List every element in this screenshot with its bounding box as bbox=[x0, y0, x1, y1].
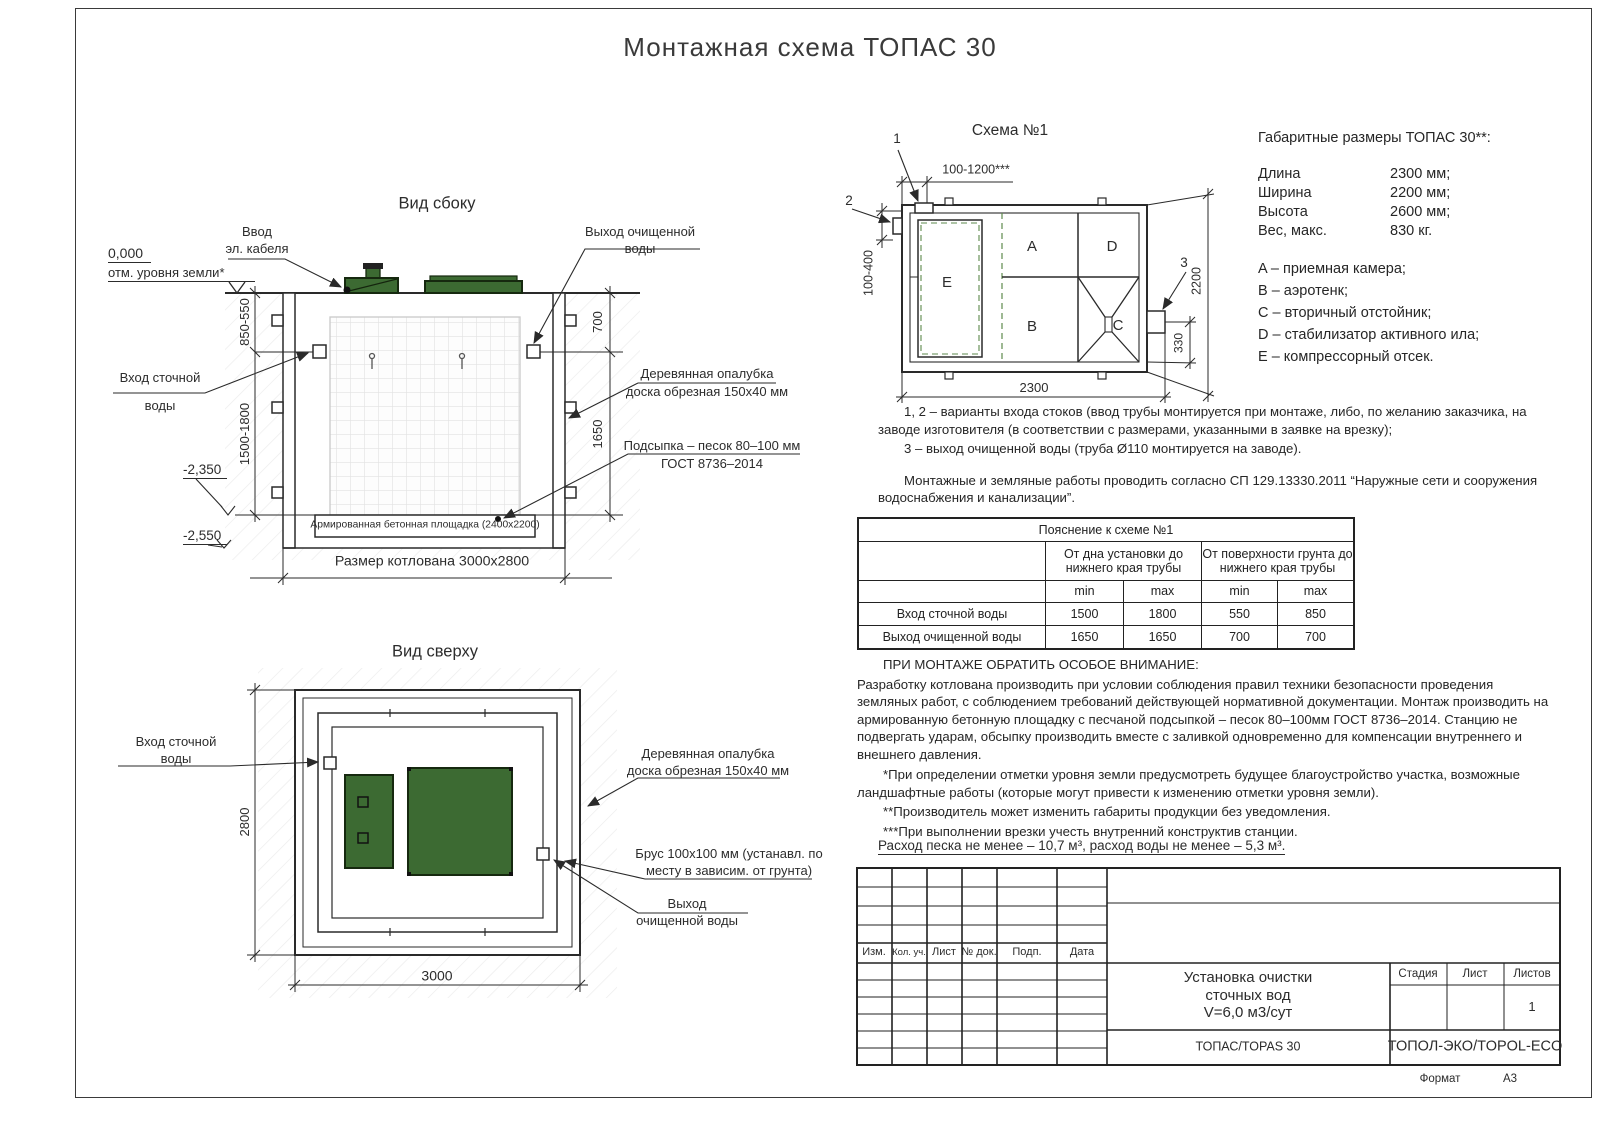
dim-2200: 2200 bbox=[1190, 267, 1203, 295]
legend-b: B – аэротенк; bbox=[1258, 283, 1348, 299]
tank-lids bbox=[345, 263, 522, 293]
callout-1: 1 bbox=[893, 132, 901, 146]
inlet-variant-1-stub bbox=[915, 203, 933, 213]
spec-height-label: Высота bbox=[1258, 204, 1308, 220]
consumption-note: Расход песка не менее – 10,7 м³, расход … bbox=[878, 839, 1285, 855]
notes-block: 1, 2 – варианты входа стоков (ввод трубы… bbox=[878, 403, 1554, 509]
stamp-product-title-2: сточных вод bbox=[1205, 988, 1290, 1004]
table-group-1: От дна установки до нижнего края трубы bbox=[1046, 542, 1202, 581]
table-cell: 1650 bbox=[1046, 626, 1124, 649]
note-variants-2: 3 – выход очищенной воды (труба Ø110 мон… bbox=[878, 440, 1554, 458]
stamp-brand: ТОПОЛ-ЭКО/TOPOL-ECO bbox=[1388, 1039, 1563, 1054]
stamp-sheets-value: 1 bbox=[1528, 1000, 1535, 1014]
stamp-col-podp: Подп. bbox=[1012, 947, 1041, 959]
sand-label-2: ГОСТ 8736–2014 bbox=[661, 457, 763, 471]
table-row: Выход очищенной воды 1650 1650 700 700 bbox=[858, 626, 1354, 649]
explanation-table: Пояснение к схеме №1 От дна установки до… bbox=[857, 517, 1355, 650]
tank-body bbox=[330, 317, 520, 515]
table-cell: 700 bbox=[1278, 626, 1355, 649]
table-cell: 1650 bbox=[1124, 626, 1202, 649]
inlet-label-1: Вход сточной bbox=[120, 371, 201, 385]
table-max-1: max bbox=[1124, 581, 1202, 603]
table-title: Пояснение к схеме №1 bbox=[858, 518, 1354, 542]
legend-e: E – компрессорный отсек. bbox=[1258, 349, 1434, 365]
table-corner-cell bbox=[858, 542, 1046, 581]
compartment-c-letter: C bbox=[1113, 318, 1124, 334]
inlet-top-label-2: воды bbox=[161, 752, 192, 766]
stamp-col-list: Лист bbox=[932, 947, 956, 959]
dim-2800: 2800 bbox=[238, 808, 252, 837]
table-cell: 700 bbox=[1202, 626, 1278, 649]
table-min-1: min bbox=[1046, 581, 1124, 603]
drawing-linework bbox=[0, 0, 1600, 1131]
callout-3: 3 bbox=[1180, 256, 1188, 270]
inlet-top-label-1: Вход сточной bbox=[136, 735, 217, 749]
cable-entry-label-1: Ввод bbox=[242, 225, 272, 239]
footnote-2: **Производитель может изменить габариты … bbox=[857, 803, 1554, 821]
inlet-variant-2-stub bbox=[893, 218, 902, 234]
dim-1650: 1650 bbox=[591, 420, 605, 449]
top-view-title: Вид сверху bbox=[392, 643, 478, 660]
pit-size-label: Размер котлована 3000x2800 bbox=[335, 555, 529, 570]
outlet-stub bbox=[1147, 311, 1165, 333]
compartment-d-letter: D bbox=[1107, 239, 1118, 255]
spec-weight-label: Вес, макс. bbox=[1258, 223, 1327, 239]
side-view-title: Вид сбоку bbox=[399, 195, 476, 212]
attention-block: ПРИ МОНТАЖЕ ОБРАТИТЬ ОСОБОЕ ВНИМАНИЕ: Ра… bbox=[857, 656, 1554, 842]
concrete-slab-label: Армированная бетонная площадка (2400x220… bbox=[310, 521, 539, 532]
stamp-sheet-header: Лист bbox=[1463, 968, 1488, 980]
clean-water-out-label-2: воды bbox=[625, 242, 656, 256]
inlet-pipe-marker-top bbox=[324, 757, 336, 769]
spec-length-value: 2300 мм; bbox=[1390, 166, 1450, 182]
footnote-1: *При определении отметки уровня земли пр… bbox=[857, 766, 1554, 801]
spec-weight-value: 830 кг. bbox=[1390, 223, 1432, 239]
timber-label-1: Брус 100x100 мм (устанавл. по bbox=[635, 847, 822, 861]
formwork-top-label-1: Деревянная опалубка bbox=[642, 747, 775, 761]
table-cell: 850 bbox=[1278, 603, 1355, 626]
dim-2300: 2300 bbox=[1020, 381, 1049, 395]
tank-lids-top bbox=[345, 768, 512, 875]
schema-title: Схема №1 bbox=[972, 123, 1048, 139]
table-cell: 1500 bbox=[1046, 603, 1124, 626]
legend-a: A – приемная камера; bbox=[1258, 261, 1406, 277]
dim-3000: 3000 bbox=[421, 969, 452, 984]
table-min-2: min bbox=[1202, 581, 1278, 603]
stamp-col-koluch: Кол. уч. bbox=[892, 948, 926, 958]
outlet-pipe-marker-top bbox=[537, 848, 549, 860]
format-label: Формат bbox=[1420, 1073, 1461, 1085]
compartment-e-letter: E bbox=[942, 275, 952, 291]
table-cell: 550 bbox=[1202, 603, 1278, 626]
specs-title: Габаритные размеры ТОПАС 30**: bbox=[1258, 130, 1491, 146]
title-block-lines bbox=[857, 868, 1560, 1065]
stamp-col-data: Дата bbox=[1070, 947, 1094, 959]
dim-330: 330 bbox=[1173, 333, 1186, 353]
format-value: А3 bbox=[1503, 1073, 1517, 1085]
inlet-pipe-marker bbox=[313, 345, 326, 358]
sand-label-1: Подсыпка – песок 80–100 мм bbox=[624, 439, 801, 453]
drawing-sheet: Монтажная схема ТОПАС 30 Вид сбоку 0,000… bbox=[0, 0, 1600, 1131]
dim-850-550: 850-550 bbox=[238, 298, 252, 346]
outlet-top-label-1: Выход bbox=[668, 897, 707, 911]
cable-entry-label-2: эл. кабеля bbox=[225, 242, 288, 256]
stamp-sheets-header: Листов bbox=[1513, 968, 1550, 980]
clean-water-out-label-1: Выход очищенной bbox=[585, 225, 695, 239]
inlet-label-2: воды bbox=[145, 399, 176, 413]
elevation-2350-label: -2,350 bbox=[183, 463, 227, 479]
dim-1500-1800: 1500-1800 bbox=[238, 403, 252, 465]
stamp-model: ТОПАС/TOPAS 30 bbox=[1196, 1040, 1301, 1053]
table-row-label: Выход очищенной воды bbox=[858, 626, 1046, 649]
cable-entry-point bbox=[344, 287, 351, 294]
elevation-2550-label: -2,550 bbox=[183, 529, 227, 545]
dim-100-400: 100-400 bbox=[862, 250, 875, 296]
compartment-b-letter: B bbox=[1027, 319, 1037, 335]
attention-heading: ПРИ МОНТАЖЕ ОБРАТИТЬ ОСОБОЕ ВНИМАНИЕ: bbox=[857, 656, 1554, 674]
callout-2: 2 bbox=[845, 194, 853, 208]
table-row: Вход сточной воды 1500 1800 550 850 bbox=[858, 603, 1354, 626]
legend-c: C – вторичный отстойник; bbox=[1258, 305, 1431, 321]
formwork-label-2: доска обрезная 150x40 мм bbox=[626, 385, 788, 399]
schema-tank bbox=[902, 205, 1147, 372]
stamp-col-ndok: № док. bbox=[961, 947, 996, 959]
timber-label-2: месту в зависим. от грунта) bbox=[646, 864, 812, 878]
table-empty-cell bbox=[858, 581, 1046, 603]
elevation-mark bbox=[229, 282, 245, 293]
ground-level-label: отм. уровня земли* bbox=[108, 266, 255, 282]
formwork-top-label-2: доска обрезная 150x40 мм bbox=[627, 764, 789, 778]
table-group-2: От поверхности грунта до нижнего края тр… bbox=[1202, 542, 1355, 581]
table-max-2: max bbox=[1278, 581, 1355, 603]
stamp-col-izm: Изм. bbox=[862, 947, 886, 959]
schema-drawing bbox=[852, 150, 1214, 403]
table-cell: 1800 bbox=[1124, 603, 1202, 626]
spec-height-value: 2600 мм; bbox=[1390, 204, 1450, 220]
zero-elevation-label: 0,000 bbox=[108, 246, 151, 263]
note-sp: Монтажные и земляные работы проводить со… bbox=[878, 472, 1554, 507]
page-title: Монтажная схема ТОПАС 30 bbox=[623, 32, 996, 63]
note-variants-1: 1, 2 – варианты входа стоков (ввод трубы… bbox=[878, 403, 1554, 438]
legend-d: D – стабилизатор активного ила; bbox=[1258, 327, 1479, 343]
outlet-top-label-2: очищенной воды bbox=[636, 914, 738, 928]
spec-width-value: 2200 мм; bbox=[1390, 185, 1450, 201]
dim-700: 700 bbox=[591, 311, 605, 333]
formwork-label-1: Деревянная опалубка bbox=[641, 367, 774, 381]
stamp-product-title-3: V=6,0 м3/сут bbox=[1204, 1005, 1292, 1021]
spec-length-label: Длина bbox=[1258, 166, 1300, 182]
stamp-stage-header: Стадия bbox=[1398, 968, 1437, 980]
top-view-drawing bbox=[118, 668, 812, 998]
attention-body: Разработку котлована производить при усл… bbox=[857, 676, 1554, 764]
spec-width-label: Ширина bbox=[1258, 185, 1312, 201]
compartment-a-letter: A bbox=[1027, 239, 1037, 255]
dim-100-1200: 100-1200*** bbox=[942, 163, 1009, 176]
table-row-label: Вход сточной воды bbox=[858, 603, 1046, 626]
stamp-product-title-1: Установка очистки bbox=[1184, 970, 1313, 986]
outlet-pipe-marker bbox=[527, 345, 540, 358]
